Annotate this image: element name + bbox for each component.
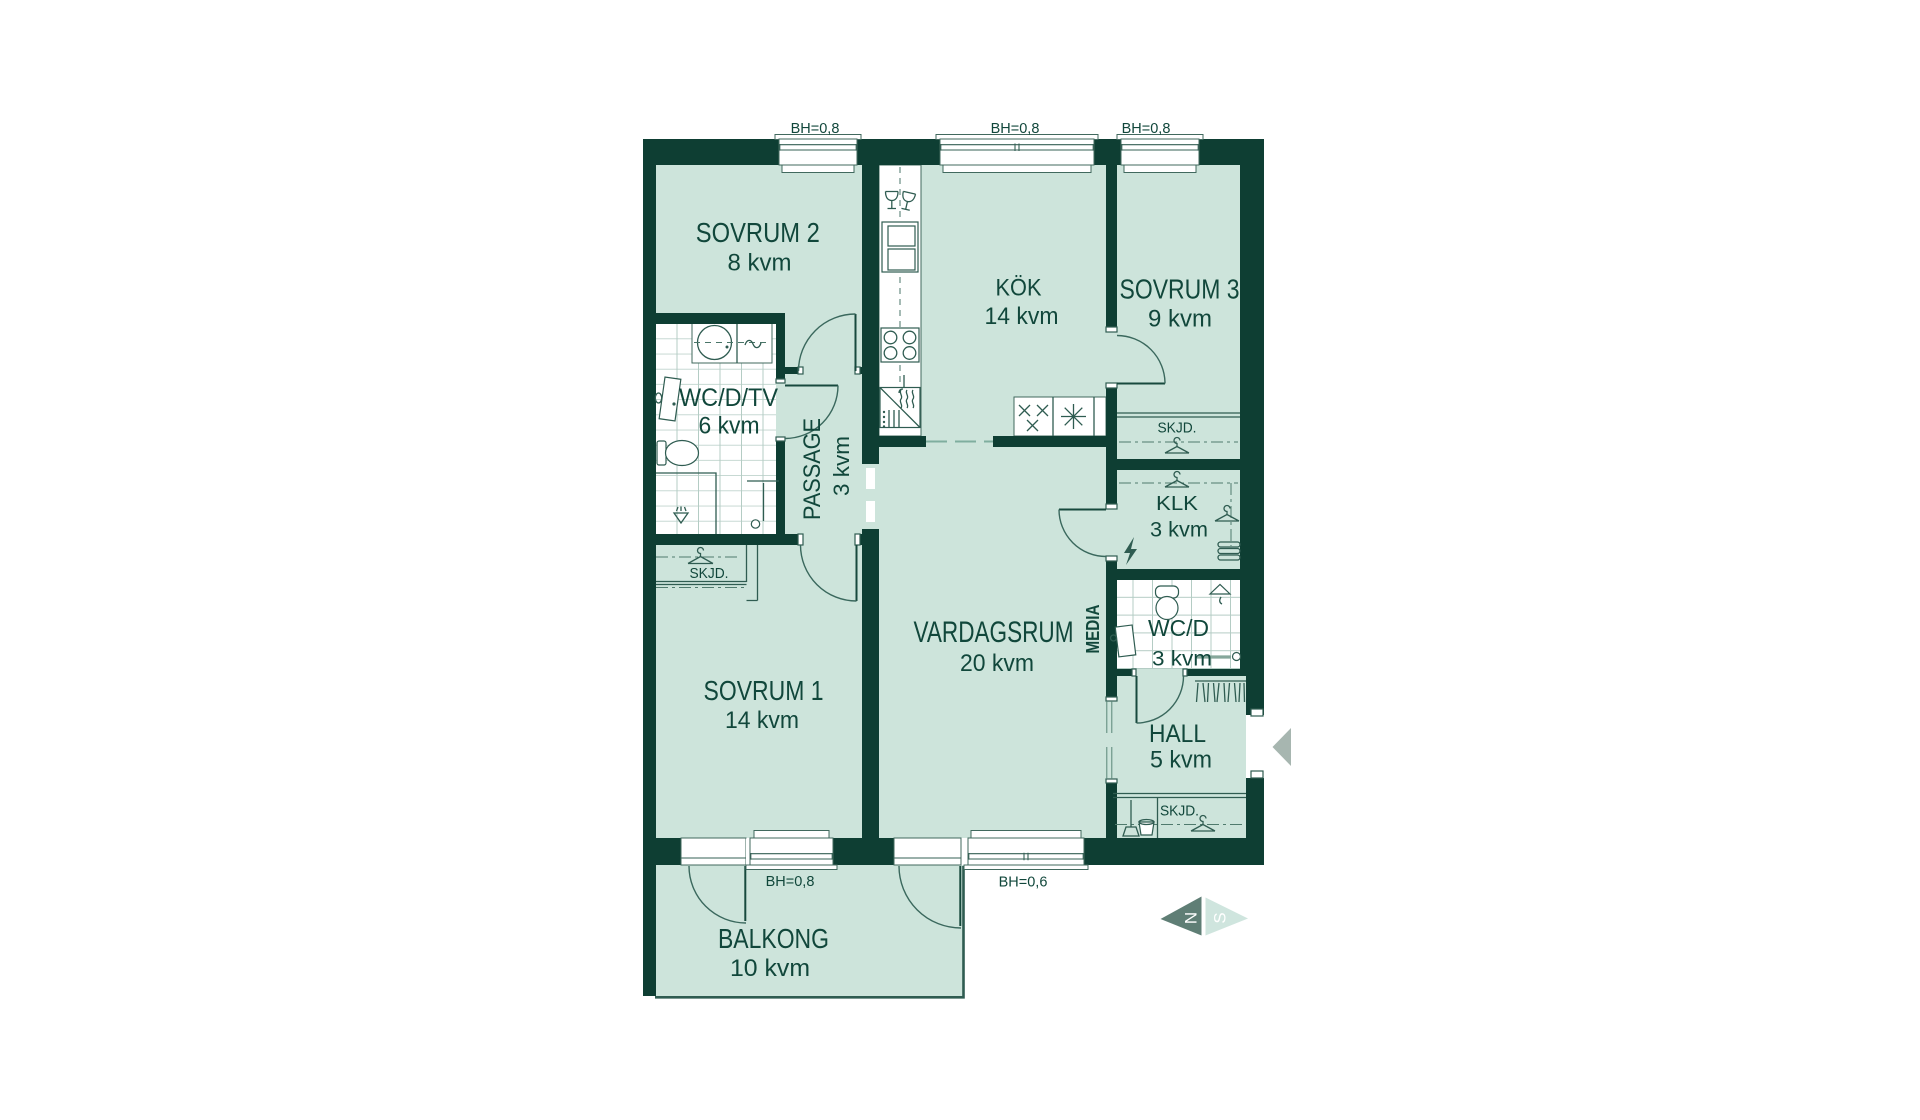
svg-text:3 kvm: 3 kvm <box>1152 647 1212 671</box>
svg-text:BH=0,8: BH=0,8 <box>791 121 840 137</box>
svg-text:14 kvm: 14 kvm <box>725 707 799 734</box>
svg-text:PASSAGE: PASSAGE <box>799 418 826 520</box>
svg-text:KLK: KLK <box>1156 493 1199 515</box>
svg-text:WC/D: WC/D <box>1148 615 1209 641</box>
svg-text:SKJD.: SKJD. <box>1158 420 1197 437</box>
svg-text:3 kvm: 3 kvm <box>1150 518 1208 542</box>
svg-text:BH=0,8: BH=0,8 <box>991 121 1040 137</box>
svg-text:VARDAGSRUM: VARDAGSRUM <box>914 616 1074 649</box>
svg-text:HALL: HALL <box>1149 720 1206 748</box>
svg-text:9 kvm: 9 kvm <box>1148 306 1212 333</box>
svg-text:SOVRUM 3: SOVRUM 3 <box>1120 274 1240 305</box>
svg-text:3 kvm: 3 kvm <box>829 436 854 496</box>
svg-text:SOVRUM 2: SOVRUM 2 <box>696 217 820 248</box>
svg-text:S: S <box>1211 912 1230 923</box>
svg-text:10 kvm: 10 kvm <box>730 955 810 982</box>
svg-text:SKJD.: SKJD. <box>690 565 729 582</box>
svg-text:20 kvm: 20 kvm <box>960 650 1034 677</box>
svg-text:BH=0,8: BH=0,8 <box>766 874 815 890</box>
svg-text:BH=0,6: BH=0,6 <box>999 875 1048 891</box>
svg-text:6 kvm: 6 kvm <box>699 413 760 440</box>
svg-text:KÖK: KÖK <box>996 275 1043 302</box>
svg-text:BALKONG: BALKONG <box>718 923 829 954</box>
svg-text:MEDIA: MEDIA <box>1083 605 1103 654</box>
svg-text:5 kvm: 5 kvm <box>1150 747 1212 774</box>
svg-text:8 kvm: 8 kvm <box>728 250 792 277</box>
svg-text:SOVRUM 1: SOVRUM 1 <box>704 675 824 706</box>
svg-text:14 kvm: 14 kvm <box>985 303 1059 330</box>
svg-text:N: N <box>1182 912 1201 924</box>
svg-text:WC/D/TV: WC/D/TV <box>679 384 778 412</box>
svg-text:BH=0,8: BH=0,8 <box>1122 121 1171 137</box>
svg-text:SKJD.: SKJD. <box>1160 803 1199 820</box>
